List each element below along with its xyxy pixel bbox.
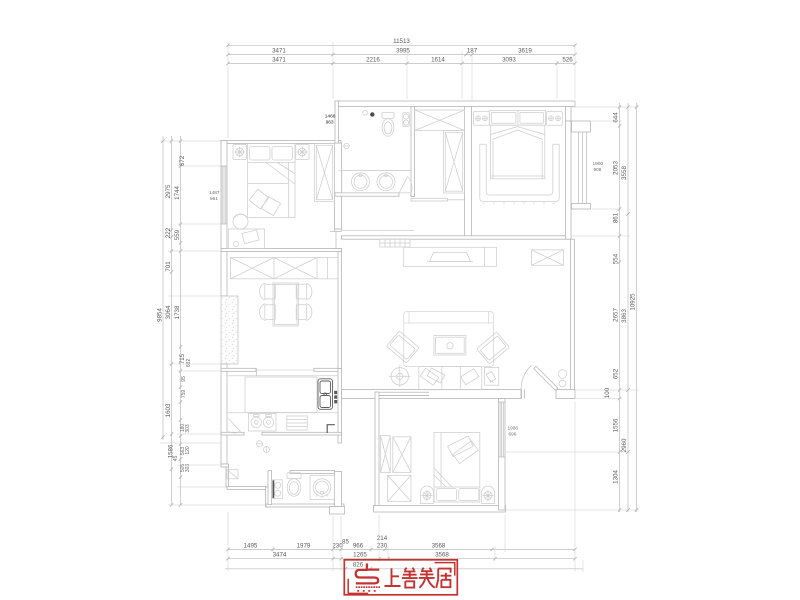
svg-text:961: 961 — [210, 196, 218, 201]
svg-text:10925: 10925 — [630, 293, 637, 311]
svg-text:652: 652 — [613, 368, 620, 379]
svg-text:2053: 2053 — [613, 161, 620, 175]
svg-text:1556: 1556 — [613, 418, 620, 432]
svg-text:1265: 1265 — [353, 552, 367, 559]
svg-text:214: 214 — [377, 535, 388, 542]
svg-text:187: 187 — [467, 48, 478, 55]
svg-text:222: 222 — [165, 227, 172, 238]
svg-text:3474: 3474 — [273, 552, 287, 559]
svg-text:3471: 3471 — [272, 48, 286, 55]
svg-text:3093: 3093 — [502, 56, 516, 63]
svg-text:100: 100 — [604, 387, 611, 398]
svg-text:682: 682 — [186, 359, 192, 368]
svg-text:1900: 1900 — [593, 161, 604, 166]
svg-text:966: 966 — [353, 542, 364, 549]
svg-text:759: 759 — [181, 390, 187, 399]
svg-text:1979: 1979 — [297, 542, 311, 549]
svg-text:908: 908 — [594, 167, 602, 172]
svg-text:3568: 3568 — [435, 552, 449, 559]
svg-text:3568: 3568 — [432, 542, 446, 549]
svg-text:1304: 1304 — [613, 470, 620, 484]
svg-text:1495: 1495 — [244, 542, 258, 549]
svg-text:1744: 1744 — [174, 186, 181, 200]
svg-text:559: 559 — [174, 229, 181, 240]
svg-text:2657: 2657 — [613, 308, 620, 322]
svg-text:2975: 2975 — [165, 184, 172, 198]
svg-text:1603: 1603 — [165, 403, 172, 417]
svg-text:1906: 1906 — [508, 426, 519, 431]
svg-text:9854: 9854 — [157, 308, 164, 322]
svg-text:45: 45 — [173, 456, 179, 462]
svg-text:95: 95 — [181, 376, 187, 382]
svg-text:1487: 1487 — [209, 190, 220, 195]
svg-text:3995: 3995 — [396, 48, 410, 55]
svg-text:3064: 3064 — [165, 305, 172, 319]
svg-text:861: 861 — [613, 212, 620, 223]
svg-text:3471: 3471 — [272, 56, 286, 63]
svg-text:963: 963 — [326, 120, 334, 126]
svg-text:120: 120 — [185, 446, 191, 455]
svg-text:701: 701 — [165, 261, 172, 272]
svg-text:526: 526 — [562, 56, 573, 63]
svg-text:554: 554 — [613, 253, 620, 264]
svg-text:672: 672 — [179, 155, 186, 166]
svg-text:1614: 1614 — [431, 56, 445, 63]
svg-text:696: 696 — [509, 431, 517, 436]
svg-text:826: 826 — [353, 562, 364, 569]
svg-text:303: 303 — [185, 424, 191, 433]
svg-text:715: 715 — [179, 353, 186, 364]
svg-text:1468: 1468 — [325, 114, 336, 120]
svg-text:1738: 1738 — [174, 305, 181, 319]
svg-text:3863: 3863 — [621, 309, 628, 323]
svg-text:2960: 2960 — [621, 438, 628, 452]
svg-text:11513: 11513 — [393, 38, 410, 45]
svg-text:85: 85 — [342, 539, 349, 546]
svg-text:3558: 3558 — [621, 166, 628, 180]
svg-text:2216: 2216 — [366, 56, 380, 63]
svg-text:3619: 3619 — [518, 48, 532, 55]
